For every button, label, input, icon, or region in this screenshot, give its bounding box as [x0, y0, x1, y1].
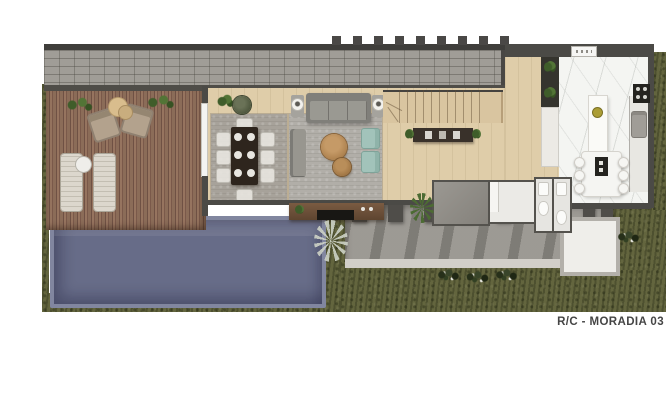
- burner: [643, 87, 647, 91]
- roof-gravel-strip: [44, 44, 506, 91]
- laundry-counter: [490, 182, 499, 212]
- roof-beam-tab: [458, 36, 467, 45]
- roof-beam-tab: [353, 36, 362, 45]
- palm-plant-icon: [314, 220, 348, 262]
- grass-right-strip: [652, 52, 666, 210]
- sink: [538, 182, 549, 196]
- place-setting: [247, 151, 255, 159]
- floor-plan-canvas: R/C - MORADIA 03: [0, 0, 672, 415]
- centerpiece-detail: [599, 161, 603, 165]
- dining-chair: [260, 150, 275, 165]
- fruit-bowl: [593, 108, 602, 117]
- sink: [556, 182, 567, 196]
- console-sideboard: [413, 128, 473, 142]
- herb-plant-icon: [544, 61, 556, 73]
- deck-side-table: [119, 106, 132, 119]
- toilet: [556, 210, 567, 225]
- place-setting: [247, 133, 255, 141]
- kitchen-east-wall: [648, 44, 654, 208]
- kitchen-right-counter: [629, 96, 648, 192]
- place-setting: [234, 133, 242, 141]
- palm-plant-icon: [410, 193, 434, 223]
- round-pouf: [233, 96, 251, 114]
- west-wall-segment: [202, 176, 208, 216]
- west-glass-door: [202, 104, 207, 176]
- island-counter: [589, 96, 607, 152]
- roof-beam-tab: [395, 36, 404, 45]
- west-wall-segment: [202, 86, 208, 104]
- burner: [643, 95, 647, 99]
- island-stool: [574, 157, 585, 168]
- dining-chair: [216, 150, 231, 165]
- cooktop: [633, 84, 650, 103]
- kitchen-tall-unit: [541, 57, 559, 107]
- teal-armchair: [361, 128, 380, 149]
- teal-armchair: [361, 151, 380, 173]
- console-object: [425, 131, 432, 139]
- roof-beam-tab: [374, 36, 383, 45]
- dining-table: [231, 127, 258, 185]
- kitchen-appliance: [632, 112, 646, 137]
- kitchen-window: [571, 46, 597, 57]
- counter-object: [361, 207, 365, 211]
- shrub-cluster-icon: [464, 271, 492, 284]
- dining-chair: [260, 168, 275, 183]
- counter-object: [369, 207, 373, 211]
- sofa-seat: [310, 101, 367, 120]
- coffee-table: [333, 158, 351, 176]
- kitchen-left-counter: [541, 107, 559, 167]
- deck-plant-icon: [62, 96, 96, 114]
- pool-side-table: [76, 157, 91, 172]
- island-stool: [618, 183, 629, 194]
- bathroom: [534, 177, 554, 233]
- sun-lounger: [94, 154, 115, 211]
- entry-room: [432, 180, 490, 226]
- roof-beam-tab: [479, 36, 488, 45]
- place-setting: [247, 169, 255, 177]
- roof-beam-tab: [437, 36, 446, 45]
- roof-beam-tab: [332, 36, 341, 45]
- shrub-cluster-icon: [436, 269, 462, 282]
- table-lamp-icon: [292, 99, 303, 110]
- stair-treads: [399, 90, 481, 123]
- bathroom: [552, 177, 572, 233]
- sofa: [306, 93, 371, 123]
- kitchen-south-wall: [561, 203, 651, 209]
- console-object: [439, 131, 446, 139]
- island-stool: [618, 157, 629, 168]
- dining-chair: [260, 132, 275, 147]
- burner: [636, 95, 640, 99]
- plan-caption: R/C - MORADIA 03: [478, 316, 664, 328]
- counter-plant-icon: [295, 205, 304, 214]
- living-plant-icon: [217, 94, 234, 109]
- dining-chair: [216, 168, 231, 183]
- loveseat: [290, 129, 306, 177]
- console-object: [453, 131, 460, 139]
- console-plant-icon: [472, 129, 481, 139]
- shrub-cluster-icon: [616, 231, 642, 244]
- island-centerpiece: [595, 157, 608, 176]
- grill-inset: [317, 210, 354, 220]
- island-stool: [574, 183, 585, 194]
- outdoor-sideboard: [289, 203, 384, 220]
- island-stool: [618, 170, 629, 181]
- toilet: [538, 201, 549, 216]
- coffee-table: [321, 134, 347, 160]
- centerpiece-detail: [599, 168, 603, 172]
- staircase: [383, 90, 503, 123]
- laundry-room: [488, 180, 536, 224]
- pergola-beam: [388, 202, 403, 222]
- window-mullion: [576, 50, 592, 53]
- place-setting: [234, 169, 242, 177]
- place-setting: [234, 151, 242, 159]
- console-plant-icon: [405, 129, 414, 139]
- shrub-cluster-icon: [494, 269, 520, 282]
- burner: [636, 87, 640, 91]
- herb-plant-icon: [544, 87, 556, 99]
- dining-chair: [216, 132, 231, 147]
- roof-beam-tab: [416, 36, 425, 45]
- island-stool: [574, 170, 585, 181]
